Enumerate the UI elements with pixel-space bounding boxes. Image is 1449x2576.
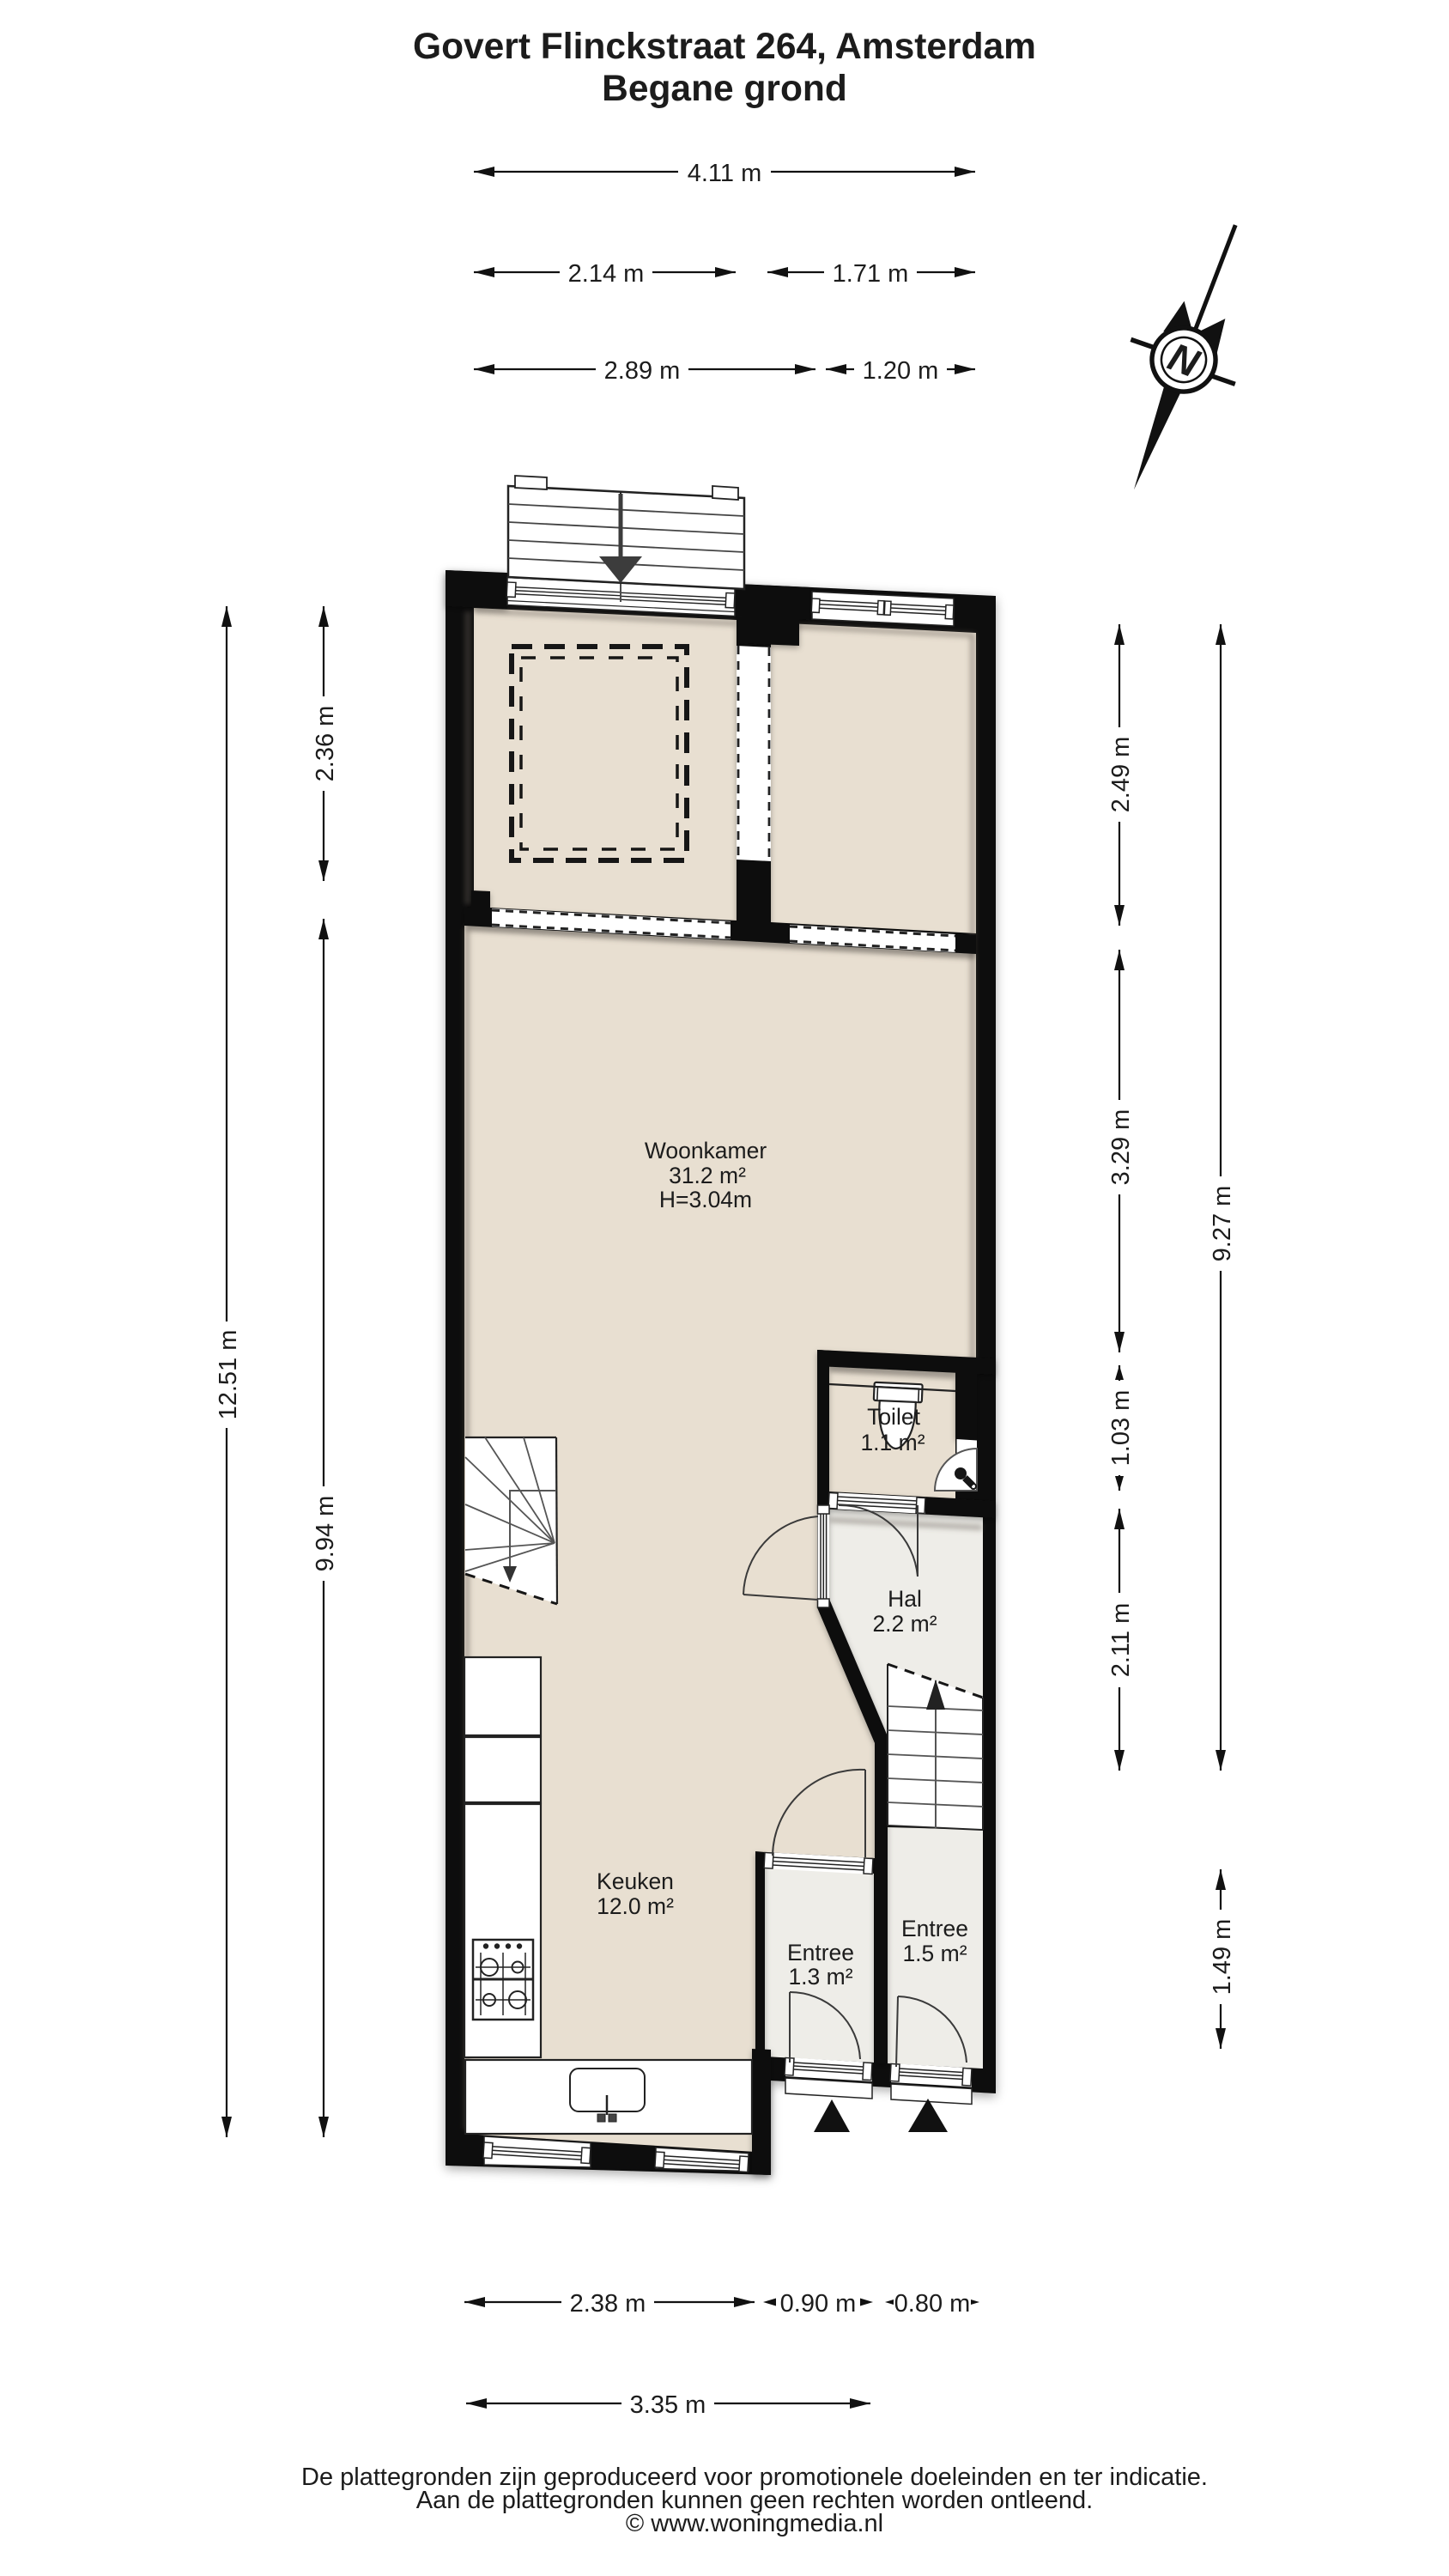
svg-text:2.2 m²: 2.2 m² — [872, 1611, 937, 1637]
svg-text:9.27 m: 9.27 m — [1209, 1186, 1236, 1262]
svg-text:Govert Flinckstraat 264, Amste: Govert Flinckstraat 264, Amsterdam — [413, 27, 1036, 67]
svg-text:1.71 m: 1.71 m — [833, 260, 909, 288]
svg-text:0.90 m: 0.90 m — [780, 2290, 857, 2318]
svg-text:H=3.04m: H=3.04m — [659, 1187, 752, 1212]
svg-text:Woonkamer: Woonkamer — [645, 1138, 767, 1163]
svg-text:31.2 m²: 31.2 m² — [669, 1163, 746, 1188]
svg-text:Begane grond: Begane grond — [602, 69, 847, 109]
svg-text:Entree: Entree — [787, 1940, 854, 1965]
svg-text:3.35 m: 3.35 m — [630, 2391, 706, 2419]
svg-text:4.11 m: 4.11 m — [688, 160, 762, 187]
svg-text:© www.woningmedia.nl: © www.woningmedia.nl — [626, 2510, 883, 2537]
svg-text:Keuken: Keuken — [597, 1868, 674, 1894]
svg-text:1.3 m²: 1.3 m² — [788, 1964, 852, 1990]
svg-text:2.89 m: 2.89 m — [604, 357, 681, 385]
svg-text:3.29 m: 3.29 m — [1107, 1109, 1135, 1186]
svg-text:1.5 m²: 1.5 m² — [902, 1941, 967, 1966]
svg-text:12.0 m²: 12.0 m² — [597, 1893, 674, 1919]
svg-text:2.14 m: 2.14 m — [568, 260, 645, 288]
svg-text:9.94 m: 9.94 m — [312, 1496, 339, 1572]
svg-text:Entree: Entree — [901, 1916, 968, 1941]
svg-text:2.49 m: 2.49 m — [1107, 737, 1135, 813]
svg-text:2.36 m: 2.36 m — [312, 706, 339, 782]
svg-text:1.20 m: 1.20 m — [863, 357, 939, 385]
svg-text:12.51 m: 12.51 m — [215, 1330, 242, 1420]
svg-text:2.11 m: 2.11 m — [1107, 1603, 1135, 1678]
svg-text:Toilet: Toilet — [867, 1404, 921, 1430]
svg-text:Hal: Hal — [888, 1586, 922, 1612]
svg-text:2.38 m: 2.38 m — [570, 2290, 646, 2318]
svg-text:1.03 m: 1.03 m — [1107, 1390, 1135, 1467]
svg-text:0.80 m: 0.80 m — [894, 2290, 971, 2318]
svg-text:1.1 m²: 1.1 m² — [860, 1430, 925, 1455]
svg-text:1.49 m: 1.49 m — [1209, 1919, 1236, 1996]
